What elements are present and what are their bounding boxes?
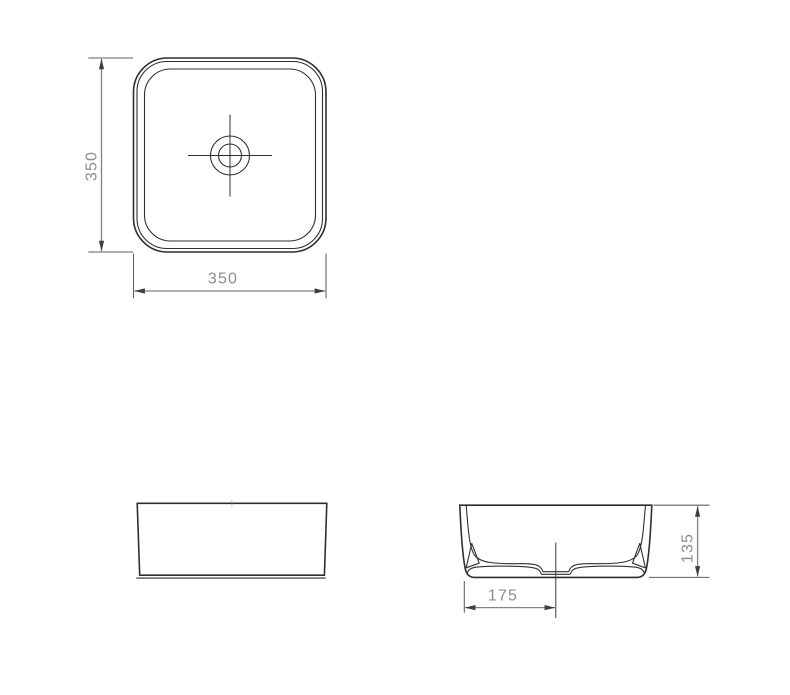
dim-label-section-height: 135 bbox=[680, 533, 697, 563]
dim-label-section-drain-offset: 175 bbox=[488, 588, 518, 605]
front-outline bbox=[137, 503, 327, 575]
drawing-svg: 350 350 bbox=[0, 0, 790, 695]
top-view bbox=[134, 58, 327, 252]
dim-label-top-height: 350 bbox=[84, 151, 101, 181]
technical-drawing-canvas: 350 350 bbox=[0, 0, 790, 695]
drawing-background bbox=[0, 0, 790, 695]
front-view bbox=[136, 500, 326, 578]
dim-label-top-width: 350 bbox=[208, 271, 238, 288]
